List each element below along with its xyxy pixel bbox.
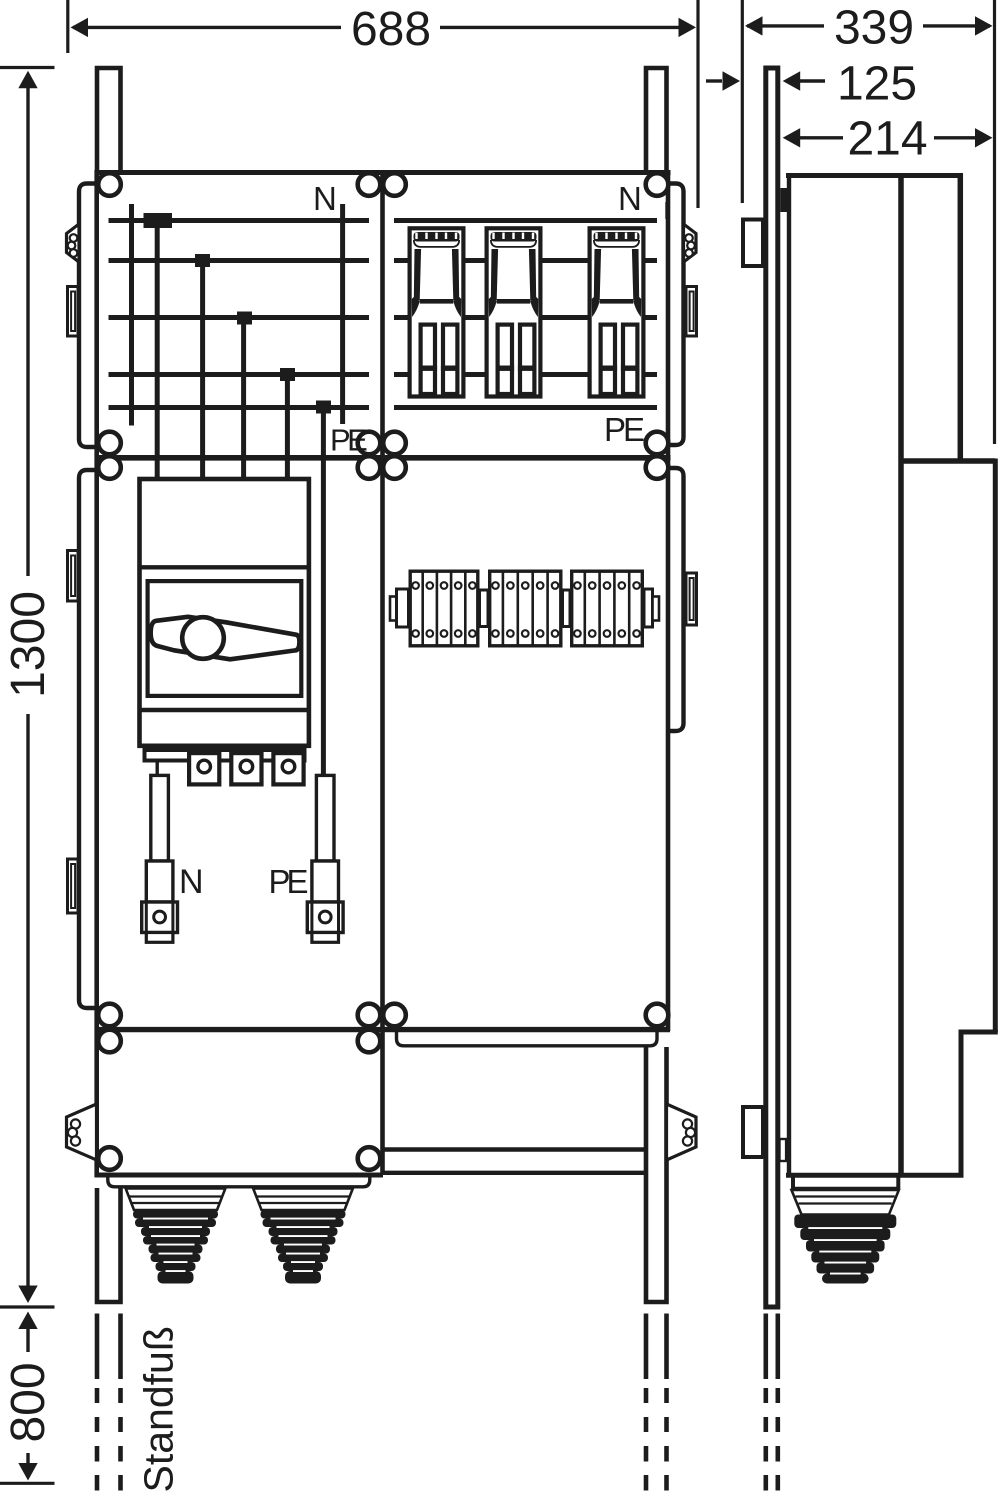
svg-text:PE: PE: [330, 423, 367, 458]
svg-text:N: N: [179, 863, 204, 901]
svg-text:1300: 1300: [2, 591, 55, 698]
svg-text:214: 214: [847, 113, 927, 166]
svg-text:N: N: [618, 180, 642, 217]
svg-text:800: 800: [2, 1362, 55, 1442]
svg-text:PE: PE: [269, 863, 308, 900]
svg-text:125: 125: [837, 58, 917, 111]
svg-text:Standfuß: Standfuß: [136, 1326, 182, 1492]
svg-text:688: 688: [351, 3, 431, 56]
svg-text:N: N: [313, 180, 337, 217]
svg-text:PE: PE: [604, 411, 644, 448]
svg-text:339: 339: [834, 2, 914, 55]
